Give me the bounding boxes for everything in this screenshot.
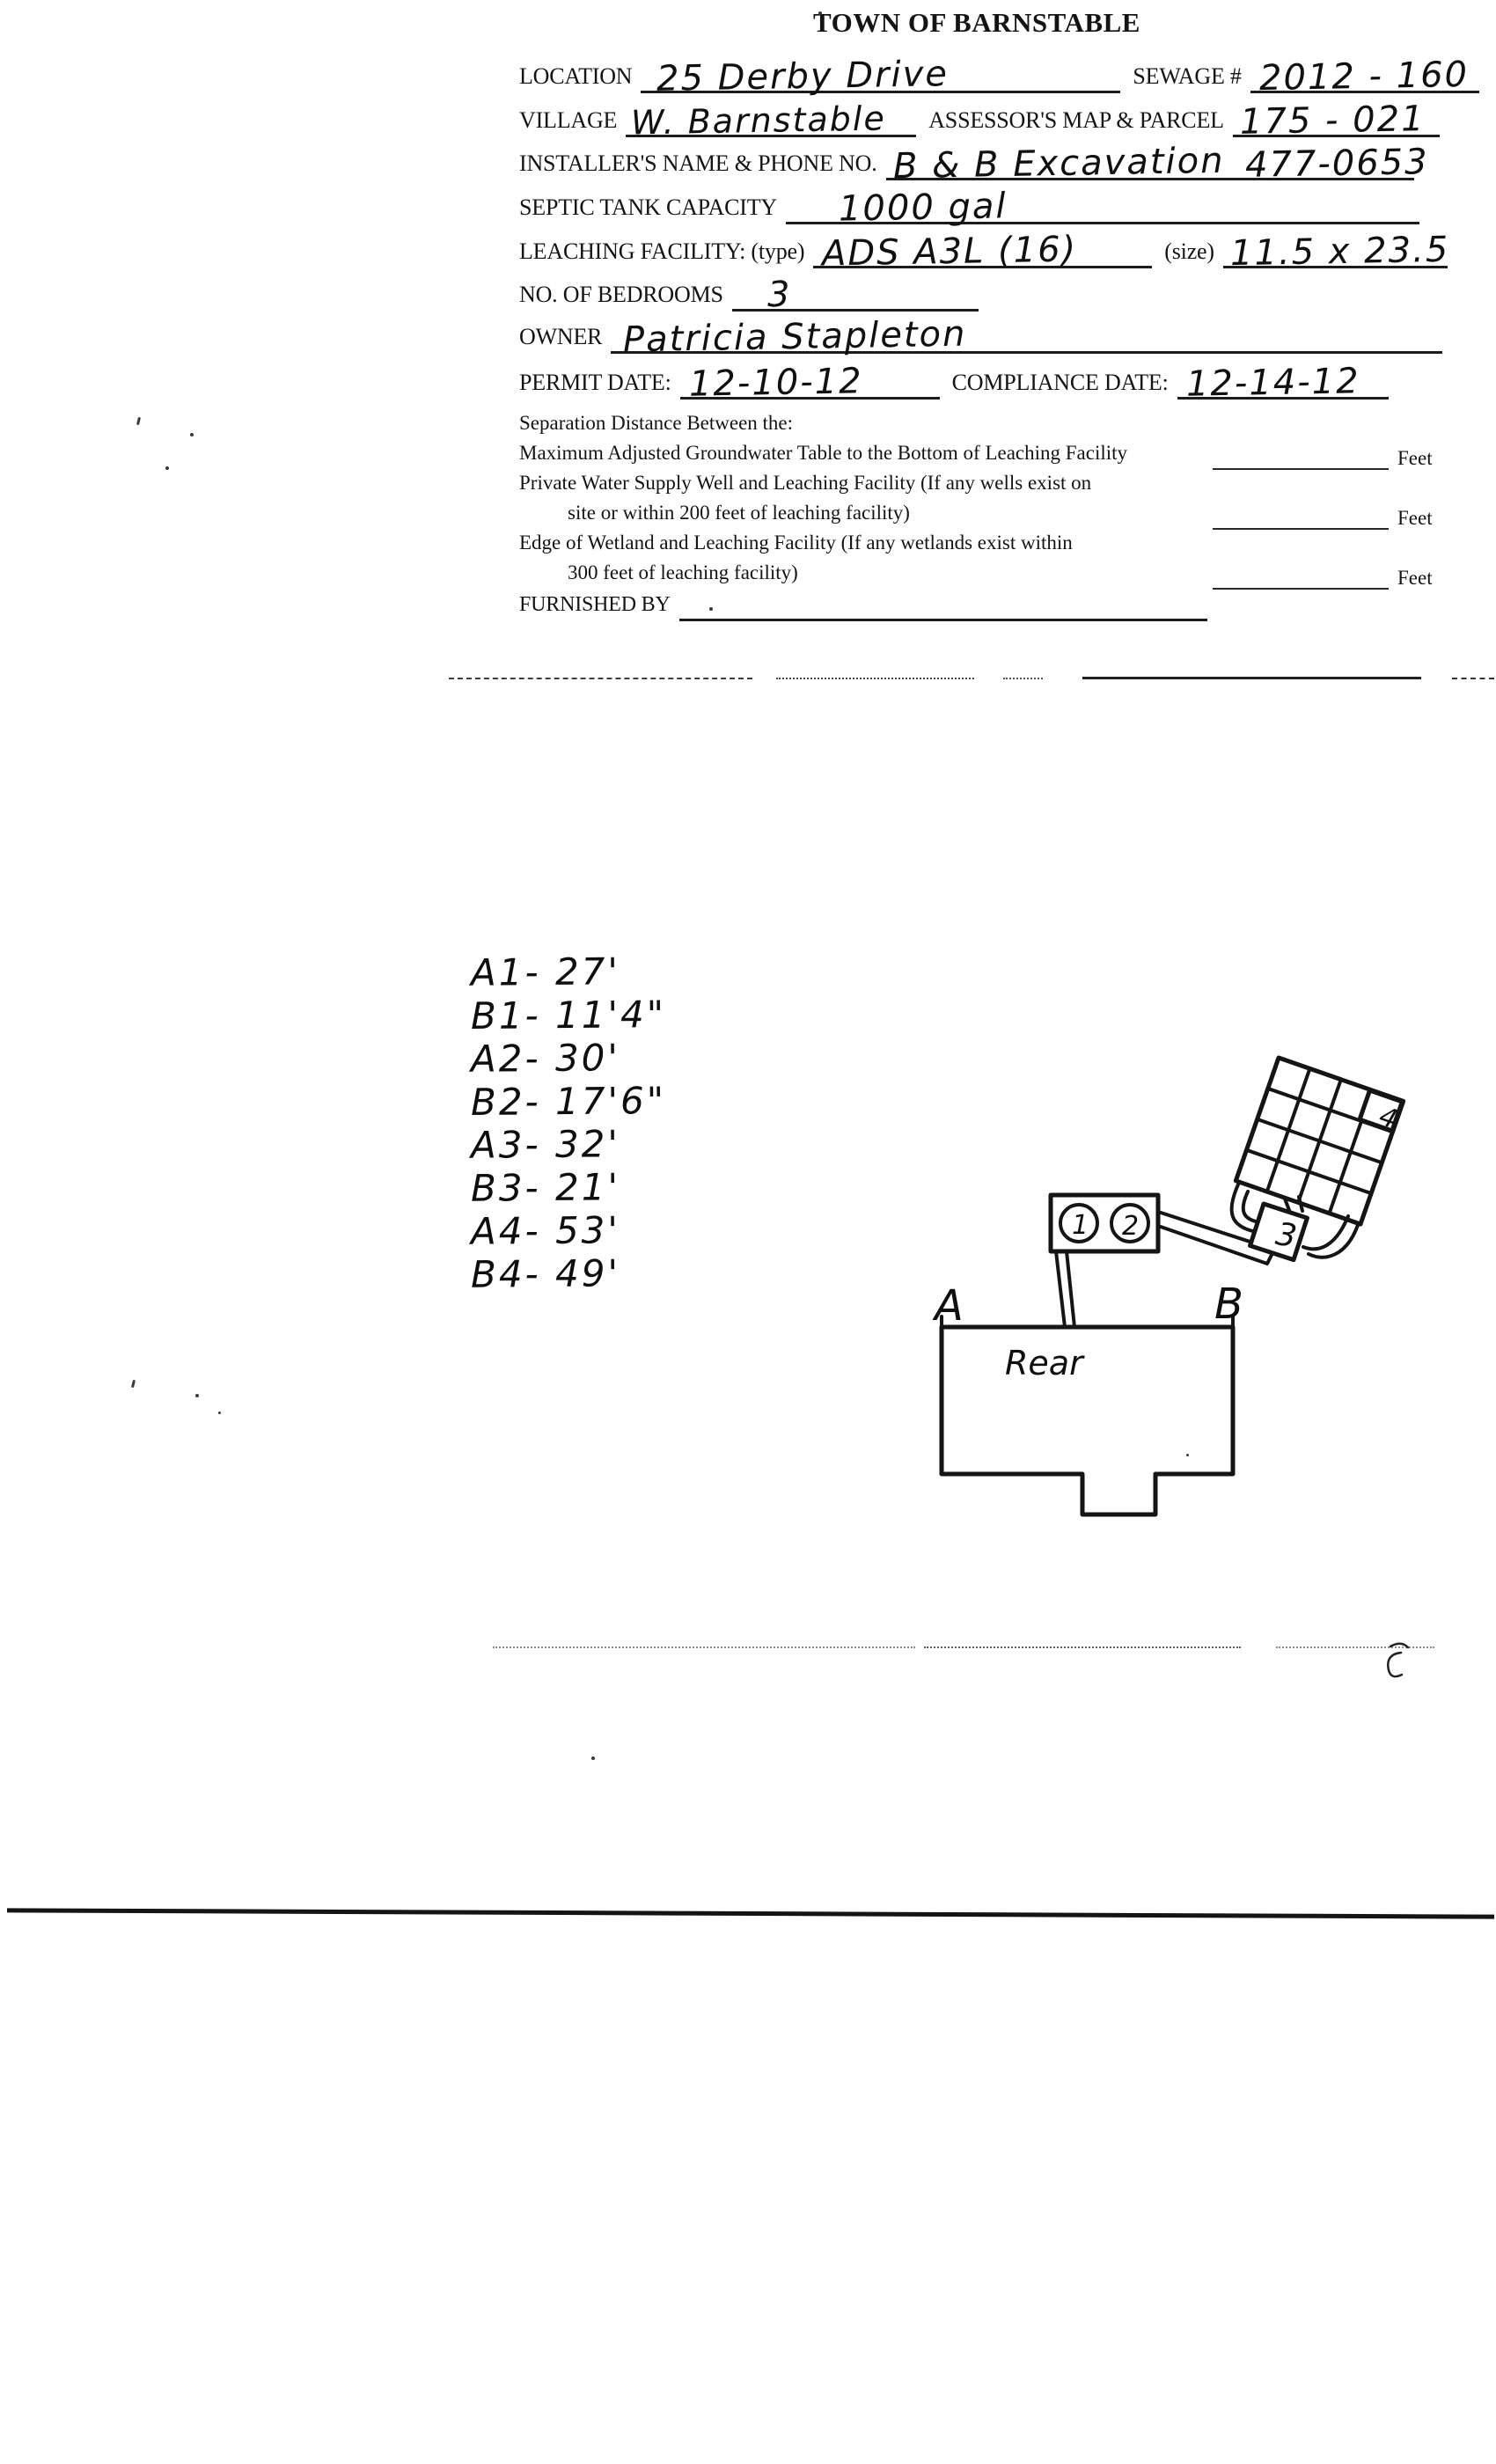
feet-row-groundwater: Feet xyxy=(1213,444,1433,470)
septic-capacity-underline: 1000 gal xyxy=(786,176,1419,224)
feet-row-well: Feet xyxy=(1213,503,1433,530)
measurement-b1: B1- 11'4" xyxy=(471,994,666,1037)
owner-label: OWNER xyxy=(519,324,602,354)
scan-speck xyxy=(818,11,822,15)
pen-squiggle xyxy=(1375,1639,1424,1688)
bottom-rule-line xyxy=(7,1908,1494,1918)
sewage-underline: 2012 - 160 xyxy=(1250,45,1479,93)
permit-date-underline: 12-10-12 xyxy=(680,351,940,400)
village-underline: W. Barnstable xyxy=(626,89,916,137)
row-septic-capacity: SEPTIC TANK CAPACITY 1000 gal xyxy=(519,179,1432,224)
tear-line-2-segment xyxy=(924,1646,1241,1648)
measurement-a3: A3- 32' xyxy=(471,1124,620,1165)
pipe-house-to-tank xyxy=(1056,1251,1074,1327)
tear-line-segment xyxy=(776,678,974,679)
separation-line-wetland-1: Edge of Wetland and Leaching Facility (I… xyxy=(519,532,1073,554)
form-title: TOWN OF BARNSTABLE xyxy=(774,7,1179,39)
measurement-a1: A1- 27' xyxy=(471,951,620,993)
scan-speck xyxy=(1186,1454,1189,1456)
tank-2-label: 2 xyxy=(1122,1211,1139,1242)
leach-field-grid xyxy=(1236,1058,1403,1224)
compliance-date-label: COMPLIANCE DATE: xyxy=(952,370,1169,400)
measurement-b2: B2- 17'6" xyxy=(471,1081,666,1123)
row-furnished-by: FURNISHED BY xyxy=(519,583,1220,621)
feet-label-groundwater: Feet xyxy=(1397,447,1433,470)
tear-line-segment xyxy=(1082,677,1421,679)
scan-speck xyxy=(136,417,141,425)
separation-heading: Separation Distance Between the: xyxy=(519,412,793,435)
feet-label-wetland: Feet xyxy=(1397,567,1433,590)
site-sketch: A B Rear 1 2 3 4 xyxy=(915,1030,1461,1584)
leaching-size-underline: 11.5 x 23.5 xyxy=(1223,220,1448,268)
leaching-size-value: 11.5 x 23.5 xyxy=(1229,231,1449,273)
leaching-size-label: (size) xyxy=(1164,238,1214,268)
separation-line-well-2: site or within 200 feet of leaching faci… xyxy=(568,502,910,524)
furnished-by-label: FURNISHED BY xyxy=(519,591,671,621)
tear-line-segment xyxy=(1452,678,1494,679)
house-rear-label: Rear xyxy=(1005,1344,1085,1382)
row-location: LOCATION 25 Derby Drive SEWAGE # 2012 - … xyxy=(519,48,1492,93)
compliance-date-value: 12-14-12 xyxy=(1185,362,1360,403)
tear-line-2-segment xyxy=(493,1646,915,1648)
assessors-underline: 175 - 021 xyxy=(1233,89,1440,137)
compliance-date-underline: 12-14-12 xyxy=(1177,351,1389,400)
feet-blank-well xyxy=(1213,503,1389,530)
septic-tank xyxy=(1051,1195,1158,1251)
scan-speck xyxy=(131,1380,136,1388)
scanned-septic-permit-form: TOWN OF BARNSTABLE LOCATION 25 Derby Dri… xyxy=(0,0,1496,2464)
row-installer: INSTALLER'S NAME & PHONE NO. B & B Excav… xyxy=(519,135,1426,180)
corner-a-label: A xyxy=(932,1281,964,1331)
scan-speck xyxy=(165,466,169,470)
lateral-pipe-right xyxy=(1303,1216,1348,1249)
measurement-a2: A2- 30' xyxy=(471,1038,620,1079)
row-leaching-facility: LEACHING FACILITY: (type) ADS A3L (16) (… xyxy=(519,223,1460,268)
permit-date-label: PERMIT DATE: xyxy=(519,370,671,400)
feet-label-well: Feet xyxy=(1397,507,1433,530)
measurement-b4: B4- 49' xyxy=(471,1253,620,1294)
bedrooms-underline: 3 xyxy=(732,263,979,312)
village-label: VILLAGE xyxy=(519,107,617,137)
corner-b-label: B xyxy=(1214,1280,1243,1329)
permit-date-value: 12-10-12 xyxy=(688,362,862,403)
row-dates: PERMIT DATE: 12-10-12 COMPLIANCE DATE: 1… xyxy=(519,354,1401,400)
measurement-b3: B3- 21' xyxy=(471,1167,620,1208)
separation-line-well-1: Private Water Supply Well and Leaching F… xyxy=(519,472,1091,495)
feet-row-wetland: Feet xyxy=(1213,563,1433,590)
row-owner: OWNER Patricia Stapleton xyxy=(519,308,1455,354)
installer-underline: B & B Excavation 477-0653 xyxy=(886,132,1414,180)
feet-blank-groundwater xyxy=(1213,444,1389,470)
feet-blank-wetland xyxy=(1213,563,1389,590)
location-label: LOCATION xyxy=(519,63,632,93)
scan-speck xyxy=(190,433,194,436)
separation-line-groundwater: Maximum Adjusted Groundwater Table to th… xyxy=(519,442,1127,465)
scan-speck xyxy=(709,607,713,611)
septic-capacity-label: SEPTIC TANK CAPACITY xyxy=(519,194,777,224)
scan-speck xyxy=(591,1756,595,1760)
measurement-a4: A4- 53' xyxy=(471,1210,620,1251)
leaching-type-underline: ADS A3L (16) xyxy=(813,220,1152,268)
tear-line-segment xyxy=(449,678,752,679)
scan-speck xyxy=(195,1394,199,1397)
scan-speck xyxy=(218,1412,221,1414)
house-outline xyxy=(942,1327,1233,1514)
location-underline: 25 Derby Drive xyxy=(641,45,1120,93)
furnished-by-underline xyxy=(679,580,1207,621)
tear-line-segment xyxy=(1003,678,1043,679)
tank-1-label: 1 xyxy=(1072,1210,1089,1241)
row-village: VILLAGE W. Barnstable ASSESSOR'S MAP & P… xyxy=(519,92,1452,137)
owner-underline: Patricia Stapleton xyxy=(611,305,1442,354)
sewage-label: SEWAGE # xyxy=(1133,63,1241,93)
